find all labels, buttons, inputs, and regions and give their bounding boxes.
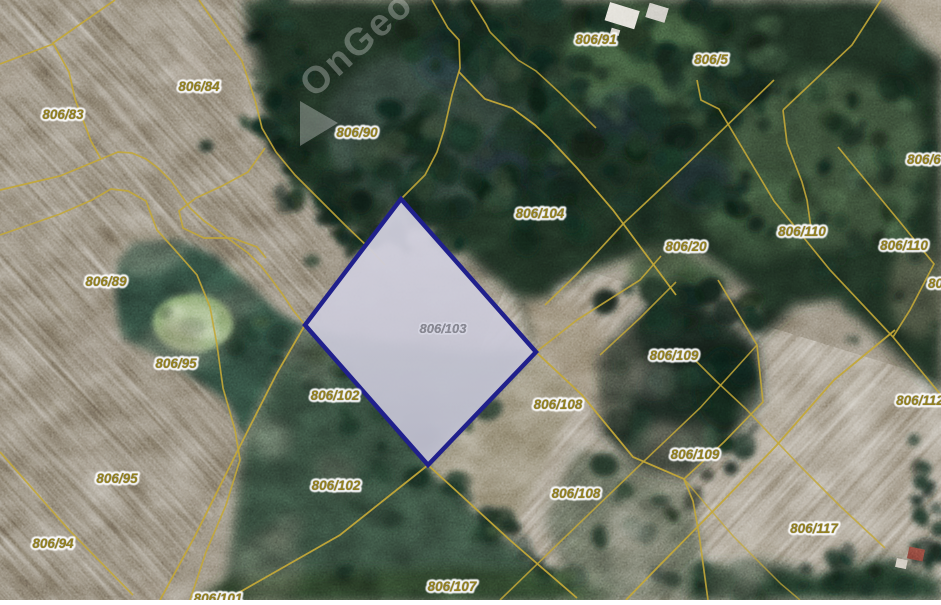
svg-text:806/5: 806/5: [694, 52, 728, 67]
svg-text:806/108: 806/108: [534, 397, 583, 412]
svg-text:806/84: 806/84: [178, 79, 220, 94]
svg-text:806/102: 806/102: [311, 388, 360, 403]
svg-text:806/83: 806/83: [42, 107, 84, 122]
svg-text:806/90: 806/90: [336, 125, 378, 140]
svg-text:806/94: 806/94: [32, 536, 74, 551]
svg-text:806/91: 806/91: [575, 32, 616, 47]
svg-text:806/109: 806/109: [671, 447, 720, 462]
svg-text:806/20: 806/20: [665, 239, 707, 254]
svg-text:806/110: 806/110: [778, 224, 826, 239]
svg-text:806/95: 806/95: [96, 471, 138, 486]
svg-text:806/103: 806/103: [420, 321, 468, 336]
svg-text:806/108: 806/108: [552, 486, 601, 501]
svg-text:806/110: 806/110: [880, 238, 928, 253]
svg-text:806/107: 806/107: [428, 579, 478, 594]
svg-text:806/95: 806/95: [155, 356, 197, 371]
svg-text:806/89: 806/89: [85, 274, 127, 289]
svg-text:806/117: 806/117: [790, 521, 839, 536]
svg-text:806/101: 806/101: [194, 591, 243, 600]
svg-text:806/6: 806/6: [907, 152, 941, 167]
svg-text:806/109: 806/109: [650, 348, 699, 363]
svg-text:806/104: 806/104: [516, 206, 565, 221]
svg-text:806/1: 806/1: [928, 276, 941, 291]
svg-text:806/102: 806/102: [312, 478, 361, 493]
svg-text:806/112: 806/112: [896, 393, 941, 408]
